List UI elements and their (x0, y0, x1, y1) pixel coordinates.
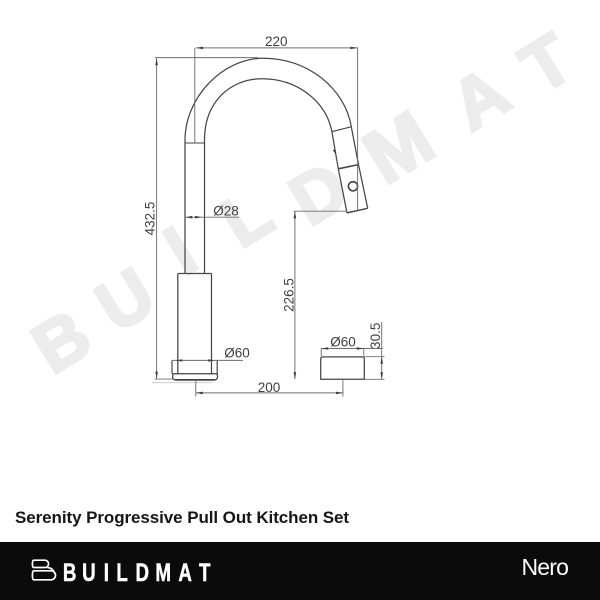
svg-text:A: A (438, 52, 523, 146)
svg-text:Ø60: Ø60 (224, 346, 250, 361)
svg-text:D: D (135, 558, 149, 586)
svg-text:T: T (199, 558, 211, 586)
svg-text:226.5: 226.5 (282, 278, 297, 312)
svg-text:I: I (152, 212, 210, 290)
svg-text:B: B (19, 295, 104, 389)
svg-text:30.5: 30.5 (368, 323, 383, 349)
svg-text:U: U (83, 253, 168, 347)
svg-text:B: B (63, 558, 77, 586)
svg-text:L: L (116, 558, 127, 586)
svg-text:M: M (350, 95, 448, 201)
svg-text:432.5: 432.5 (142, 202, 157, 236)
svg-text:U: U (82, 558, 96, 586)
svg-text:M: M (155, 558, 171, 586)
svg-text:220: 220 (265, 34, 288, 49)
svg-text:A: A (178, 558, 192, 586)
svg-text:I: I (104, 558, 109, 586)
svg-text:Ø28: Ø28 (213, 204, 239, 219)
svg-text:200: 200 (258, 380, 281, 395)
svg-text:T: T (508, 19, 586, 109)
svg-text:D: D (277, 147, 362, 241)
svg-text:Ø60: Ø60 (330, 335, 356, 350)
